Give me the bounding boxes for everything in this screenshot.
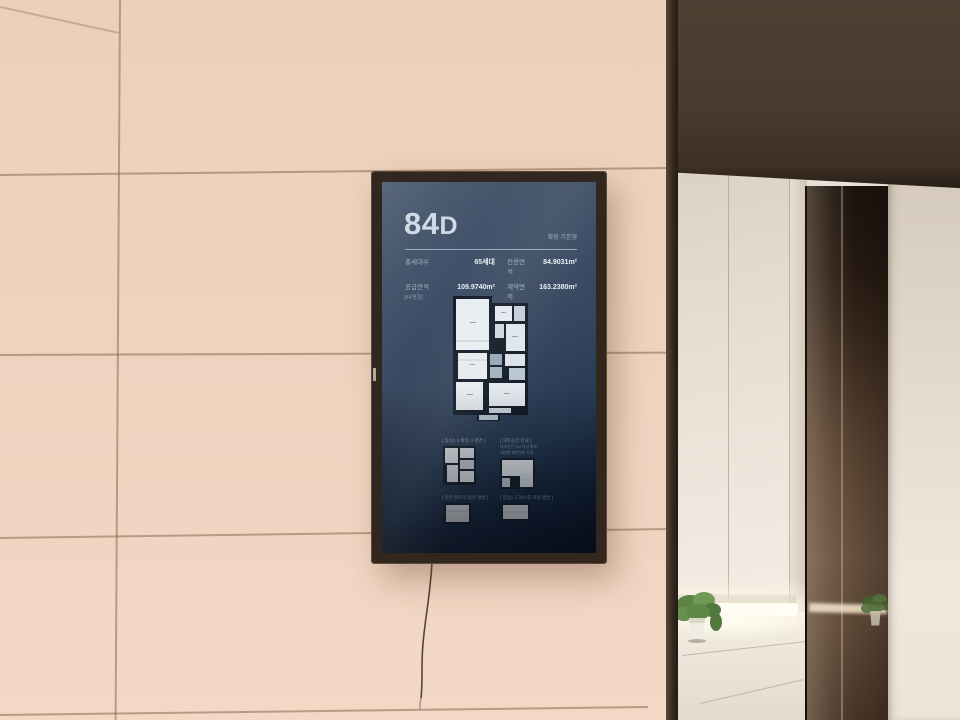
mini-floorplan-2 — [500, 458, 535, 489]
stat-value: 65세대 — [441, 257, 495, 267]
potted-plant — [678, 588, 724, 660]
tile-seam — [0, 6, 119, 33]
stat-label: 공급면적 — [405, 281, 441, 291]
hallway-right-panel — [888, 182, 960, 720]
bronze-mirror — [805, 186, 893, 720]
title-divider — [405, 249, 577, 250]
mini-floorplan-4 — [501, 503, 530, 521]
showroom-scene: 84D 확장 기본형 총세대수 65세대 전용면적 84.9031m² 공급면적… — [0, 0, 960, 720]
kiosk-display-frame: 84D 확장 기본형 총세대수 65세대 전용면적 84.9031m² 공급면적… — [372, 172, 606, 563]
stat-label: 총세대수 — [405, 256, 441, 266]
stat-value: 84.9031m² — [529, 259, 577, 266]
wall-panel-seam — [728, 168, 729, 604]
tile-seam-vertical — [115, 0, 121, 720]
wall-corner-trim — [666, 0, 678, 720]
mini-floorplan-3 — [444, 503, 471, 524]
mini-plan-caption: [ 침실1 드레스룸·욕실 평면 ] — [500, 495, 553, 501]
main-floorplan — [446, 294, 532, 424]
mini-floorplan-1 — [443, 446, 476, 485]
stat-value: 109.9740m² — [441, 284, 495, 291]
ceiling-soffit — [678, 0, 960, 192]
tile-seam — [0, 706, 648, 716]
power-cable — [413, 560, 443, 710]
bezel-sensor-mark — [373, 368, 376, 381]
mini-plan-note: 세대별 제연설비 적용 — [500, 450, 534, 456]
stat-value: 163.2380m² — [529, 284, 577, 291]
stat-label: 전용면적 — [495, 256, 529, 276]
mirror-edge-highlight — [841, 186, 843, 720]
kiosk-touchscreen[interactable]: 84D 확장 기본형 총세대수 65세대 전용면적 84.9031m² 공급면적… — [382, 182, 596, 553]
hallway-left-wall-panels — [678, 168, 807, 604]
mini-plan-caption: [ 침실2·3 확장시 평면 ] — [442, 438, 485, 444]
unit-variant-label: 확장 기본형 — [382, 232, 577, 241]
plan-section-label: [84평형] — [404, 293, 423, 301]
hallway — [678, 0, 960, 720]
mini-plan-caption: [ 현관 팬트리 옵션 평면 ] — [442, 495, 488, 501]
